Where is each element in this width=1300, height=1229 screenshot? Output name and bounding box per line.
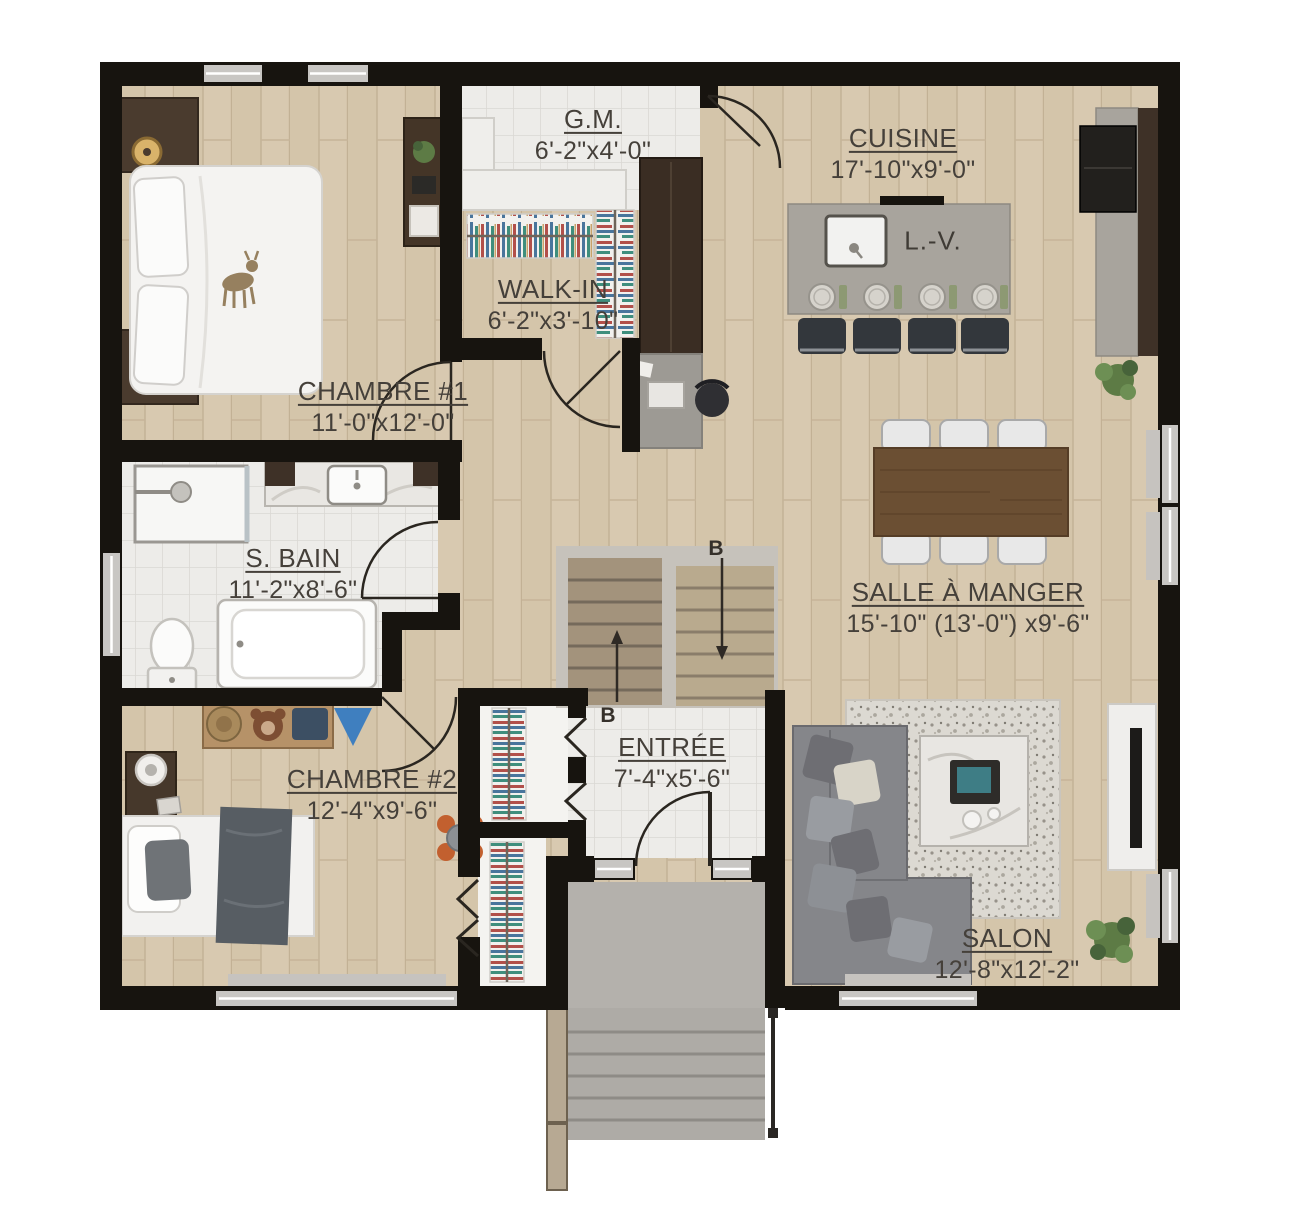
window-sidelight — [712, 859, 752, 879]
tv — [1130, 728, 1142, 848]
floor-plan-graphic — [0, 0, 1300, 1229]
kitchen-cabinets — [1138, 108, 1160, 356]
floor-plan: G.M. 6'-2"x4'-0" CUISINE 17'-10"x9'-0" W… — [0, 0, 1300, 1229]
blanket — [216, 807, 293, 945]
toilet — [151, 619, 193, 673]
pillow — [133, 177, 188, 277]
entry-floor — [568, 690, 765, 858]
railing-post-left — [547, 1004, 567, 1122]
shower-drain — [171, 482, 191, 502]
vanity-cabinet — [265, 462, 295, 486]
book — [957, 767, 991, 793]
laptop — [648, 382, 684, 408]
window — [1146, 506, 1179, 586]
toy-box — [292, 708, 328, 740]
pillow — [133, 285, 188, 385]
stairwell — [556, 546, 778, 708]
office-chair — [695, 383, 729, 417]
window — [203, 64, 263, 83]
window — [1146, 868, 1179, 944]
porch-and-steps — [547, 882, 778, 1190]
desk-item — [412, 176, 436, 194]
dining-set — [874, 420, 1068, 564]
shower — [135, 466, 247, 542]
desk-pad — [410, 206, 438, 236]
window — [838, 974, 978, 1007]
hood-mark — [880, 196, 944, 205]
cushion — [144, 839, 191, 901]
window — [1146, 424, 1179, 504]
window-sidelight — [594, 859, 634, 879]
window — [102, 552, 121, 657]
window — [215, 974, 458, 1007]
window — [307, 64, 369, 83]
railing-post-left-lower — [547, 1124, 567, 1190]
small-item — [157, 797, 181, 816]
sink — [826, 216, 886, 266]
closet-clothes — [490, 708, 526, 982]
